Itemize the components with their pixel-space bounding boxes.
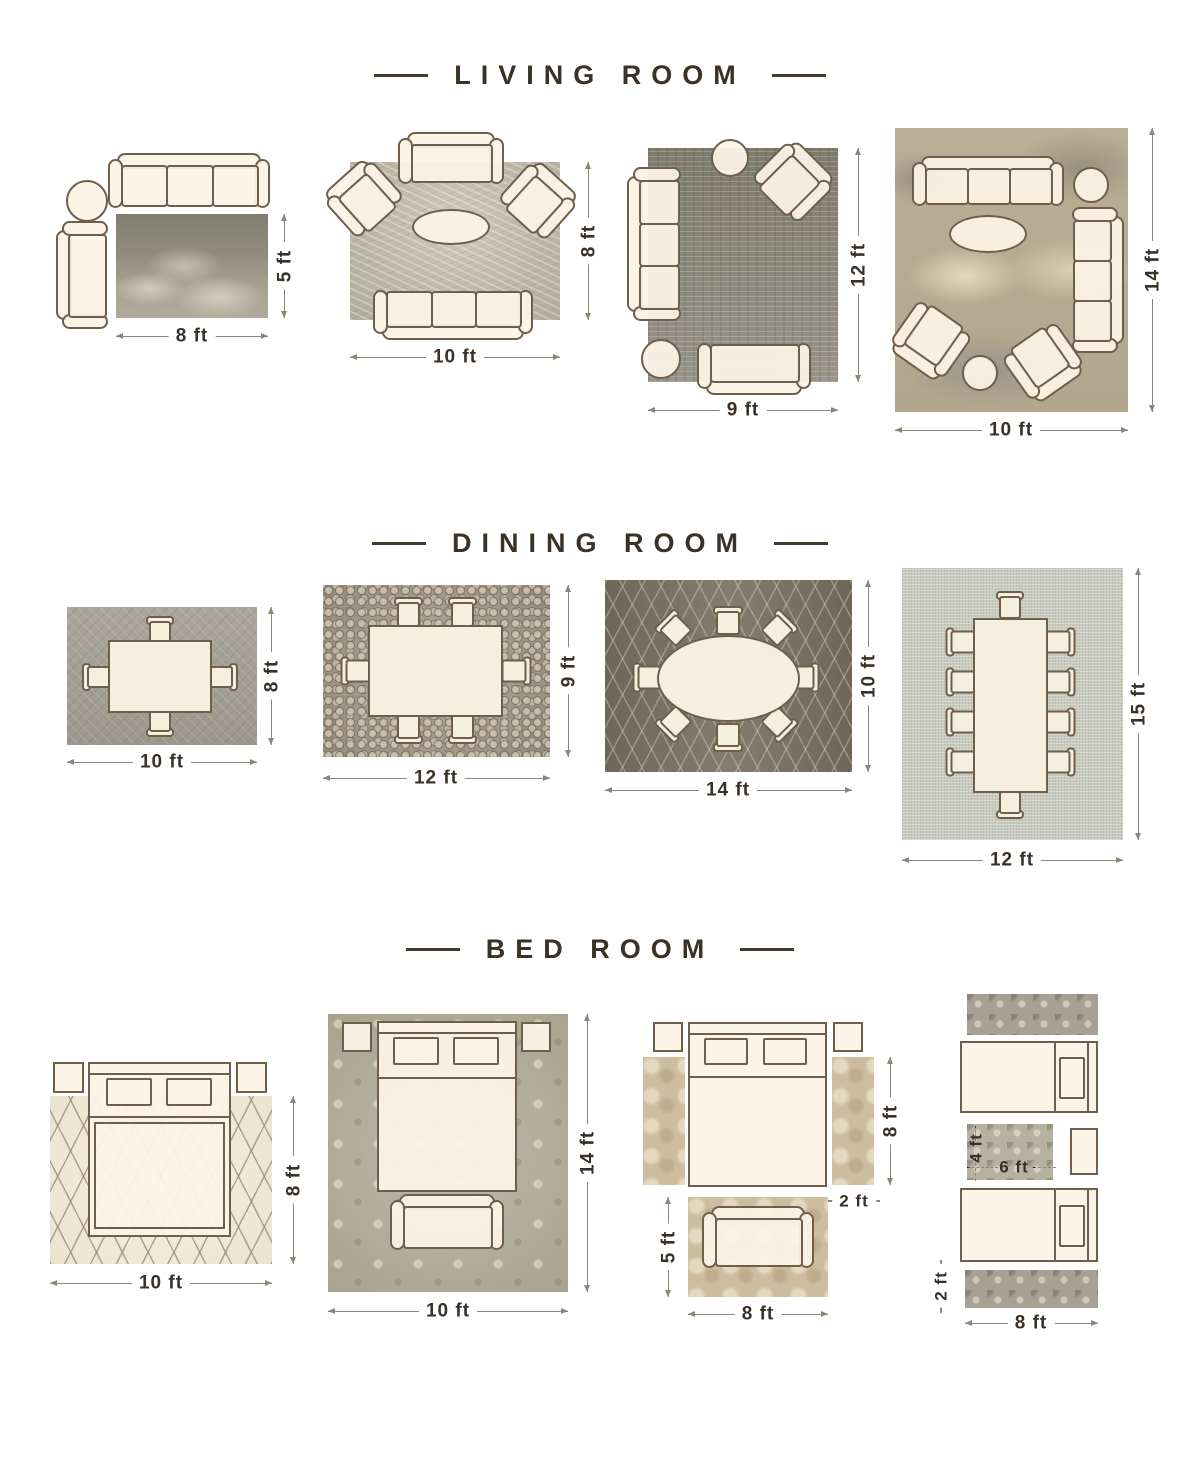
dining-chair: [946, 628, 976, 657]
loveseat-vertical: [56, 221, 108, 329]
sofa-cushion: [1073, 300, 1112, 342]
width-label: 10 ft: [133, 751, 191, 774]
dining-chair: [146, 709, 174, 737]
runner-height-label: 8 ft: [880, 1098, 903, 1145]
headboard: [1087, 1041, 1098, 1113]
height-label: 12 ft: [848, 236, 871, 294]
dining-chair: [946, 708, 976, 737]
sofa-cushion: [1009, 168, 1053, 205]
dimension-line-middle-rug-width: [967, 1167, 998, 1168]
loveseat: [398, 132, 504, 184]
foot-rug-width-label: 8 ft: [735, 1303, 782, 1326]
title-dash-left: [374, 74, 428, 77]
chair-seat: [951, 751, 976, 774]
twin-bed: [960, 1188, 1098, 1262]
bed: [688, 1022, 827, 1187]
chair-seat: [716, 611, 740, 635]
bench-seats: [715, 1218, 801, 1267]
sofa-cushion: [925, 168, 969, 205]
bench: [702, 1206, 814, 1268]
sofa-cushion: [710, 344, 800, 383]
chair-seat: [397, 602, 420, 627]
height-label: 8 ft: [578, 218, 601, 265]
nightstand: [1070, 1128, 1098, 1175]
sofa-cushion: [967, 168, 1011, 205]
round-side-table: [1073, 167, 1109, 203]
bench: [390, 1194, 504, 1250]
pillow: [1059, 1057, 1085, 1099]
sofa-three-seat-vertical: [627, 167, 681, 321]
chair-seat: [1046, 631, 1071, 654]
runner-width-label: 2 ft: [931, 1264, 952, 1308]
pillow: [1059, 1205, 1085, 1247]
dining-chair: [996, 791, 1024, 819]
dining-chair: [946, 748, 976, 777]
dining-chair: [1046, 628, 1076, 657]
chair-seat: [999, 791, 1021, 814]
sofa-seats: [386, 291, 520, 328]
headboard: [88, 1062, 231, 1075]
dining-chair: [394, 714, 423, 744]
living-room-header: LIVING ROOM: [0, 60, 1200, 91]
width-label: 10 ft: [419, 1300, 477, 1323]
height-label: 14 ft: [577, 1124, 600, 1182]
width-label: 10 ft: [982, 419, 1040, 442]
sofa-cushion: [212, 165, 259, 207]
width-label: 10 ft: [426, 346, 484, 369]
title-dash-left: [372, 542, 426, 545]
chair-seat: [397, 714, 420, 739]
chair-seat: [502, 660, 527, 683]
bedside-runner-right: [832, 1057, 874, 1185]
sofa-cushion: [639, 265, 680, 310]
chair-seat: [1046, 751, 1071, 774]
chair-seat: [951, 671, 976, 694]
nightstand: [521, 1022, 551, 1052]
bedside-runner-left: [643, 1057, 685, 1185]
height-label: 15 ft: [1128, 675, 1151, 733]
bench-cushion: [715, 1218, 803, 1267]
oval-dining-table: [657, 635, 800, 722]
sofa-three-seat: [912, 156, 1064, 206]
nightstand: [653, 1022, 683, 1052]
bed: [377, 1021, 517, 1192]
chair-seat: [1046, 671, 1071, 694]
runner-bottom: [965, 1270, 1098, 1308]
chair-seat: [951, 711, 976, 734]
chair-seat: [999, 596, 1021, 619]
dining-table: [108, 640, 212, 713]
headboard: [377, 1021, 517, 1034]
nightstand: [53, 1062, 84, 1093]
sofa-three-seat: [373, 290, 533, 340]
sofa-cushion: [411, 144, 493, 183]
title-dash-left: [406, 948, 460, 951]
sofa-cushion: [166, 165, 213, 207]
sofa-cushion: [386, 291, 433, 328]
sofa-cushion: [1073, 220, 1112, 262]
height-label: 5 ft: [274, 243, 297, 290]
title-dash-right: [774, 542, 828, 545]
width-label: 8 ft: [169, 325, 216, 348]
height-label: 14 ft: [1142, 241, 1165, 299]
sofa-seats: [68, 234, 107, 316]
nightstand: [342, 1022, 372, 1052]
living-rug-8x5: [116, 214, 268, 318]
chair-seat: [451, 602, 474, 627]
dining-chair: [713, 606, 743, 635]
rug-size-guide: LIVING ROOM 5 ft 8 ft 8 ft 10 ft: [0, 0, 1200, 1467]
blanket: [94, 1122, 225, 1229]
height-label: 9 ft: [558, 648, 581, 695]
height-label: 8 ft: [261, 653, 284, 700]
section-title-bed-room: BED ROOM: [486, 934, 715, 965]
dining-table: [368, 625, 503, 717]
width-label: 12 ft: [983, 849, 1041, 872]
dining-chair: [1046, 748, 1076, 777]
loveseat: [697, 343, 811, 395]
sheet-line: [690, 1076, 825, 1078]
dining-chair: [1046, 668, 1076, 697]
title-dash-right: [772, 74, 826, 77]
pillow: [106, 1078, 152, 1106]
sofa-cushion: [639, 223, 680, 268]
sofa-seats: [121, 165, 257, 207]
height-label: 8 ft: [283, 1157, 306, 1204]
bench-cushion: [403, 1206, 493, 1249]
middle-rug-height-label: 4 ft: [967, 1129, 986, 1167]
oval-coffee-table: [412, 209, 490, 245]
dining-chair: [394, 597, 423, 627]
runner-width-label: 2 ft: [832, 1191, 876, 1212]
headboard: [1087, 1188, 1098, 1262]
round-table: [711, 139, 749, 177]
dining-chair: [502, 657, 532, 686]
section-title-living-room: LIVING ROOM: [454, 60, 746, 91]
sofa-seats: [639, 180, 680, 308]
runner-top: [967, 994, 1098, 1035]
dining-chair: [713, 723, 743, 752]
pillow: [393, 1037, 439, 1065]
sheet-line: [1054, 1190, 1056, 1260]
sofa-cushion: [431, 291, 478, 328]
width-label: 9 ft: [720, 399, 767, 422]
chair-seat: [951, 631, 976, 654]
sofa-three-seat-vertical: [1072, 207, 1124, 353]
sheet-line: [1054, 1043, 1056, 1111]
sofa-three-seat: [108, 153, 270, 208]
width-label: 12 ft: [407, 767, 465, 790]
sheet-line: [379, 1077, 515, 1079]
oval-coffee-table: [949, 215, 1027, 253]
middle-rug-width-label: 6 ft: [995, 1158, 1033, 1177]
headboard: [688, 1022, 827, 1035]
runner-length-label: 8 ft: [1008, 1312, 1055, 1335]
bed-room-header: BED ROOM: [0, 934, 1200, 965]
sofa-seats: [411, 144, 491, 183]
round-ottoman: [641, 339, 681, 379]
width-label: 14 ft: [699, 779, 757, 802]
nightstand: [833, 1022, 863, 1052]
sofa-cushion: [639, 180, 680, 225]
dining-chair: [1046, 708, 1076, 737]
width-label: 10 ft: [132, 1272, 190, 1295]
dining-table-long: [973, 618, 1048, 793]
pillow: [704, 1038, 748, 1065]
twin-bed: [960, 1041, 1098, 1113]
sofa-cushion: [68, 234, 107, 318]
nightstand: [236, 1062, 267, 1093]
chair-seat: [716, 723, 740, 747]
dimension-line-middle-rug-width: [1033, 1167, 1056, 1168]
chair-seat: [451, 714, 474, 739]
sofa-cushion: [475, 291, 522, 328]
sofa-seats: [925, 168, 1051, 205]
dining-chair: [82, 663, 110, 691]
dining-chair: [946, 668, 976, 697]
dining-chair: [448, 597, 477, 627]
dining-chair: [210, 663, 238, 691]
chair-seat: [1046, 711, 1071, 734]
sheet-line: [90, 1116, 229, 1118]
dining-chair: [996, 591, 1024, 619]
round-ottoman: [962, 355, 998, 391]
pillow: [166, 1078, 212, 1106]
round-side-table: [66, 180, 108, 222]
chair-seat: [210, 666, 233, 688]
bench-seats: [403, 1206, 491, 1249]
pillow: [453, 1037, 499, 1065]
foot-rug-height-label: 5 ft: [658, 1224, 681, 1271]
dining-chair: [341, 657, 371, 686]
height-label: 10 ft: [858, 647, 881, 705]
chair-seat: [87, 666, 110, 688]
sofa-seats: [1073, 220, 1112, 340]
dining-room-header: DINING ROOM: [0, 528, 1200, 559]
dining-chair: [448, 714, 477, 744]
chair-seat: [346, 660, 371, 683]
section-title-dining-room: DINING ROOM: [452, 528, 748, 559]
sofa-cushion: [1073, 260, 1112, 302]
sofa-cushion: [121, 165, 168, 207]
sofa-seats: [710, 344, 798, 383]
title-dash-right: [740, 948, 794, 951]
pillow: [763, 1038, 807, 1065]
bed: [88, 1062, 231, 1237]
